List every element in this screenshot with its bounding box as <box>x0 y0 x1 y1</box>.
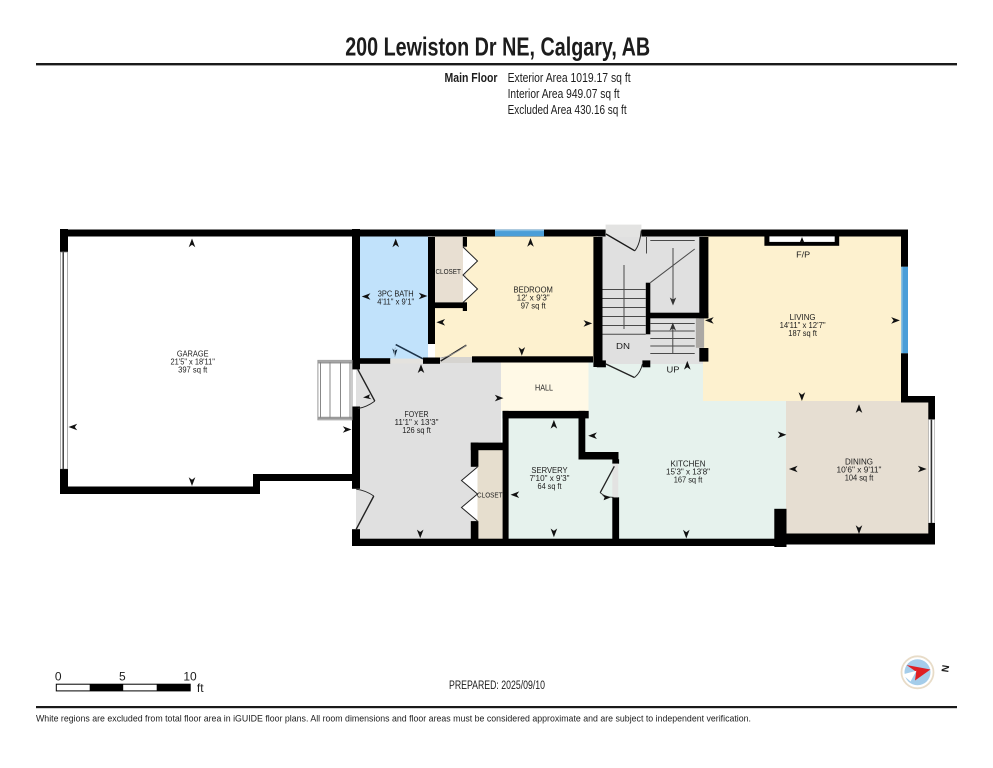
svg-text:97 sq ft: 97 sq ft <box>521 302 547 311</box>
svg-text:CLOSET: CLOSET <box>435 269 461 276</box>
svg-text:4'11" x 9'1": 4'11" x 9'1" <box>377 298 414 307</box>
svg-text:5: 5 <box>119 669 126 683</box>
svg-text:DN: DN <box>616 342 630 351</box>
svg-text:200 Lewiston Dr NE, Calgary, A: 200 Lewiston Dr NE, Calgary, AB <box>345 31 650 61</box>
svg-text:UP: UP <box>667 366 680 375</box>
svg-text:Excluded Area 430.16 sq ft: Excluded Area 430.16 sq ft <box>508 102 627 117</box>
svg-text:White regions are excluded fro: White regions are excluded from total fl… <box>36 714 751 724</box>
svg-text:F/P: F/P <box>796 250 810 259</box>
svg-text:CLOSET: CLOSET <box>477 493 503 500</box>
svg-text:Main Floor: Main Floor <box>445 70 498 85</box>
svg-text:Exterior Area 1019.17 sq ft: Exterior Area 1019.17 sq ft <box>508 70 631 85</box>
svg-text:PREPARED: 2025/09/10: PREPARED: 2025/09/10 <box>449 680 545 692</box>
svg-text:187 sq ft: 187 sq ft <box>788 329 817 338</box>
svg-text:Interior Area 949.07 sq ft: Interior Area 949.07 sq ft <box>508 86 620 101</box>
svg-text:ft: ft <box>197 681 204 695</box>
svg-text:0: 0 <box>55 669 62 683</box>
svg-text:HALL: HALL <box>535 384 553 393</box>
svg-text:64 sq ft: 64 sq ft <box>538 482 563 491</box>
svg-text:397 sq ft: 397 sq ft <box>178 365 208 374</box>
svg-text:167 sq ft: 167 sq ft <box>674 476 703 485</box>
svg-text:10: 10 <box>183 669 197 683</box>
svg-text:104 sq ft: 104 sq ft <box>845 474 874 483</box>
svg-text:126 sq ft: 126 sq ft <box>402 426 431 435</box>
